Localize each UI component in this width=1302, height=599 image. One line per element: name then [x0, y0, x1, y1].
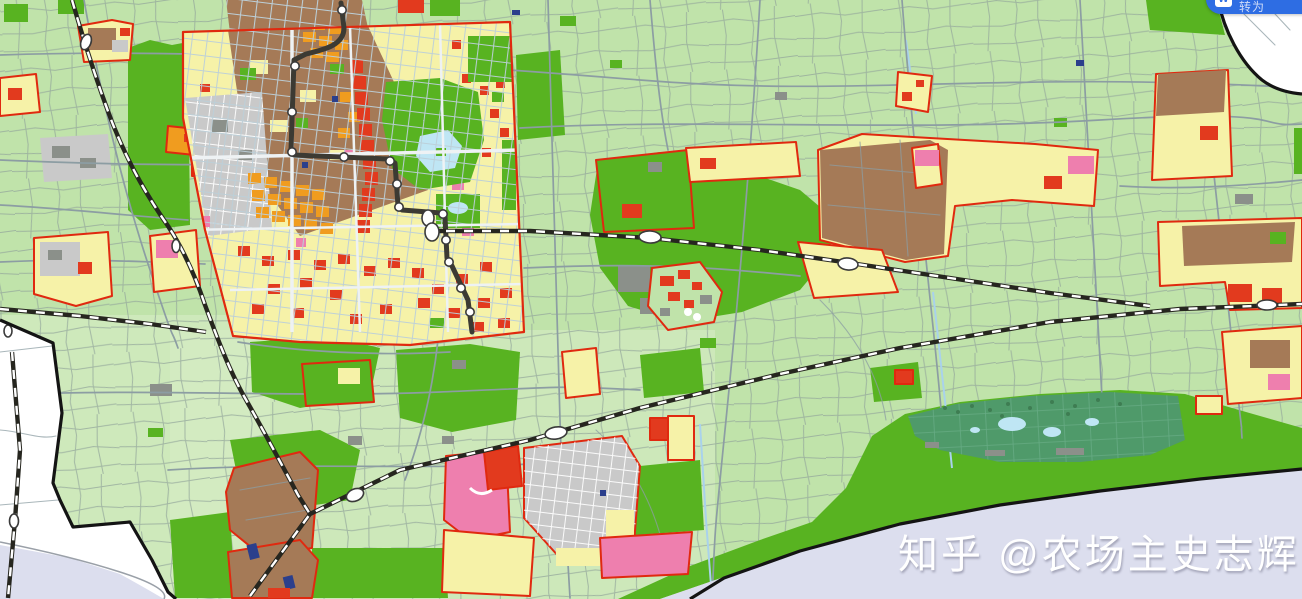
watermark: 知乎 @农场主史志辉	[898, 522, 1300, 580]
convert-floating-button[interactable]: W 转为	[1206, 0, 1302, 14]
zone-left-gray-yellow	[34, 232, 112, 306]
watermark-text: 知乎 @农场主史志辉	[898, 533, 1300, 577]
zone-top-green-block	[430, 0, 460, 16]
zone-top-red-block	[398, 0, 424, 13]
zone-center-green	[596, 150, 694, 232]
zone-tiny-red	[895, 370, 913, 384]
map-canvas[interactable]	[0, 0, 1302, 599]
land-use-planning-map-screenshot: 知乎 @农场主史志辉 W 转为	[0, 0, 1302, 599]
convert-button-label: 转为	[1239, 0, 1265, 15]
urban-core	[175, 0, 535, 350]
zone-left-edge	[0, 74, 40, 116]
word-icon: W	[1215, 0, 1232, 7]
zone-right-upper	[1152, 70, 1232, 180]
zone-center-yellow	[686, 142, 800, 182]
zone-small-pink	[912, 144, 942, 188]
zone-canal-small	[896, 72, 932, 112]
zone-green-south	[302, 360, 374, 406]
zone-small-yellow-south	[562, 348, 600, 398]
